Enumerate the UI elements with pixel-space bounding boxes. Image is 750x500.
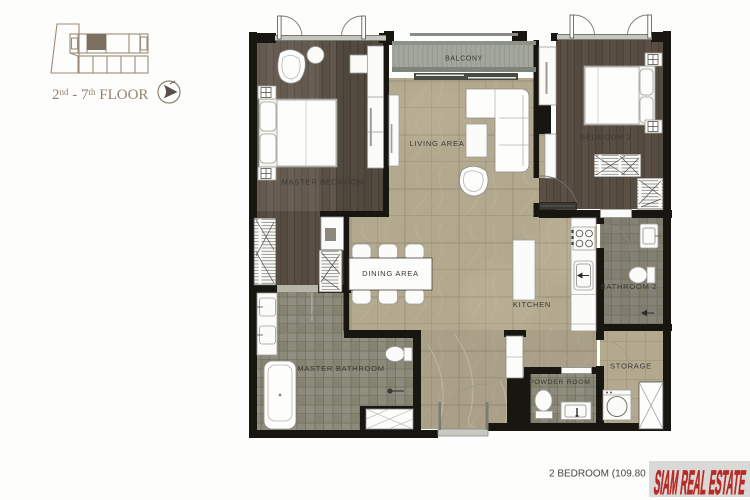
svg-text:DINING AREA: DINING AREA (362, 269, 419, 278)
svg-text:BALCONY: BALCONY (445, 56, 483, 63)
svg-text:LIVING AREA: LIVING AREA (410, 139, 465, 148)
svg-text:KITCHEN: KITCHEN (513, 300, 551, 309)
svg-text:BEDROOM 2: BEDROOM 2 (580, 133, 632, 142)
svg-text:MASTER BATHROOM: MASTER BATHROOM (297, 364, 385, 373)
svg-text:STORAGE: STORAGE (610, 362, 652, 371)
svg-text:BATHROOM 2: BATHROOM 2 (601, 282, 658, 291)
svg-text:MASTER BEDROOM: MASTER BEDROOM (282, 178, 365, 187)
svg-text:SIAM REAL ESTATE: SIAM REAL ESTATE (652, 464, 748, 500)
svg-text:POWDER ROOM: POWDER ROOM (529, 379, 590, 386)
